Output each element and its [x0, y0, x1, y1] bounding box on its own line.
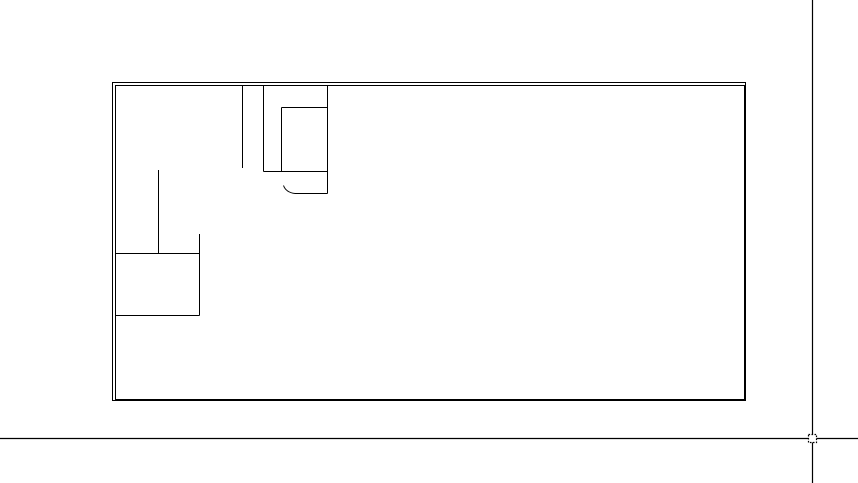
floor-plan-drawing: [113, 83, 746, 401]
pickbox-cursor-icon: [809, 435, 817, 443]
cad-application-window: [0, 0, 858, 483]
model-space-canvas[interactable]: [0, 0, 858, 483]
exterior-wall-outer-line: [113, 83, 746, 401]
exterior-wall-inner-line: [116, 86, 745, 400]
door-swing-arc: [284, 186, 296, 194]
crosshair-cursor: [0, 0, 858, 483]
